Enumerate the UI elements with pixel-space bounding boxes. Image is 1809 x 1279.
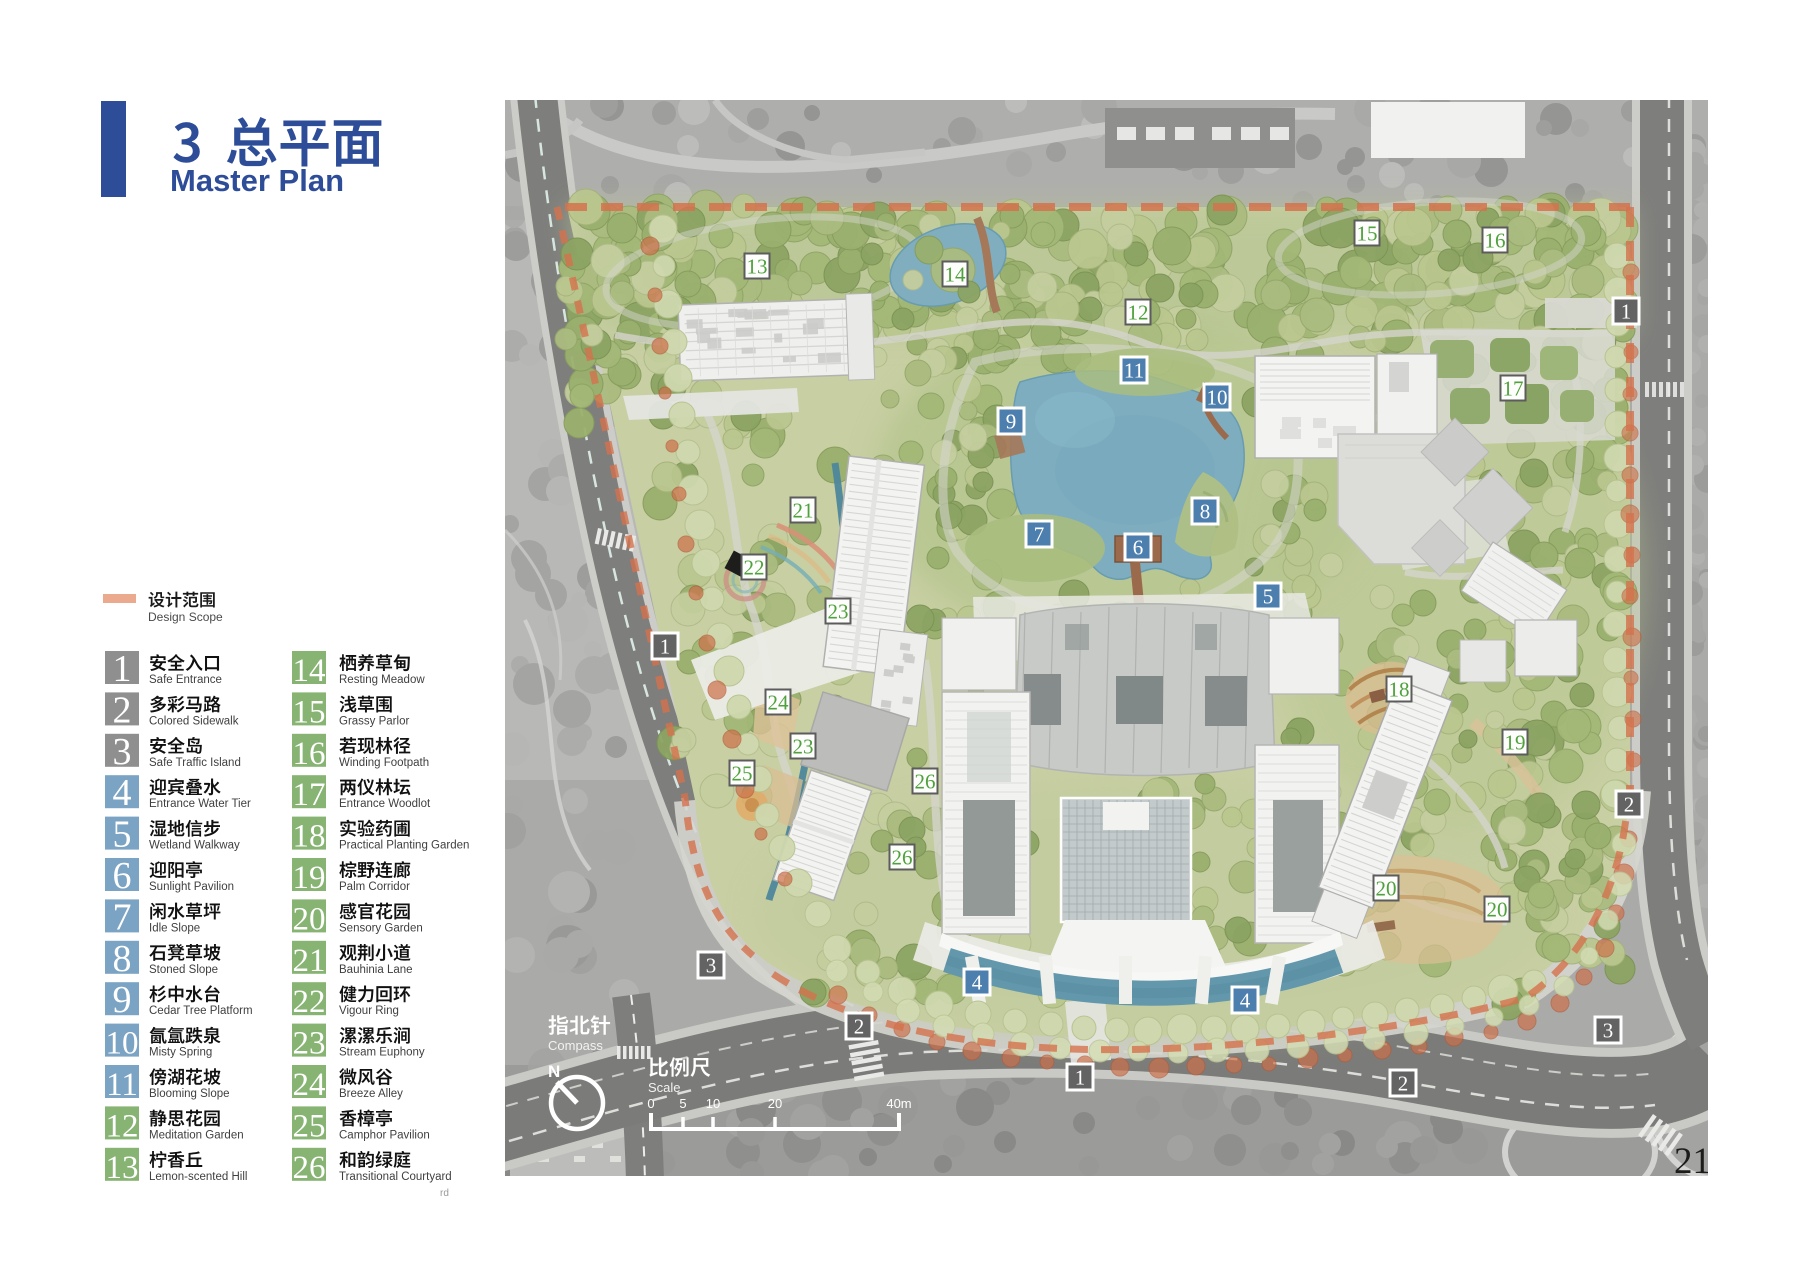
svg-text:Practical Planting Garden: Practical Planting Garden [339, 840, 469, 852]
svg-text:14: 14 [945, 263, 967, 287]
svg-text:Design Scope: Design Scope [148, 610, 223, 624]
svg-text:Stoned Slope: Stoned Slope [149, 964, 218, 976]
svg-text:10: 10 [1207, 386, 1228, 410]
svg-text:rd: rd [440, 1188, 449, 1199]
svg-text:1: 1 [1621, 300, 1632, 324]
svg-text:1: 1 [1075, 1066, 1086, 1090]
svg-text:7: 7 [113, 896, 132, 938]
svg-text:11: 11 [106, 1067, 138, 1103]
svg-text:24: 24 [293, 1067, 326, 1103]
svg-text:Master Plan: Master Plan [170, 163, 344, 198]
svg-text:Misty Spring: Misty Spring [149, 1047, 212, 1059]
svg-text:Vigour Ring: Vigour Ring [339, 1005, 399, 1017]
svg-text:Resting Meadow: Resting Meadow [339, 674, 425, 686]
svg-text:3: 3 [113, 731, 132, 773]
svg-text:26: 26 [892, 846, 913, 870]
svg-text:25: 25 [732, 762, 753, 786]
svg-text:23: 23 [793, 735, 814, 759]
svg-text:Camphor Pavilion: Camphor Pavilion [339, 1129, 430, 1141]
svg-text:5: 5 [113, 814, 132, 856]
svg-text:Sunlight Pavilion: Sunlight Pavilion [149, 881, 234, 893]
svg-text:3: 3 [1603, 1019, 1614, 1043]
svg-text:14: 14 [293, 653, 326, 689]
svg-text:10: 10 [106, 1026, 139, 1062]
svg-text:16: 16 [1485, 229, 1506, 253]
svg-text:Lemon-scented Hill: Lemon-scented Hill [149, 1171, 247, 1183]
svg-text:3: 3 [706, 954, 717, 978]
svg-text:Sensory Garden: Sensory Garden [339, 922, 423, 934]
svg-text:2: 2 [1398, 1072, 1409, 1096]
svg-text:15: 15 [293, 694, 326, 730]
svg-text:Scale: Scale [648, 1080, 681, 1095]
svg-text:18: 18 [293, 819, 326, 855]
svg-text:Transitional Courtyard: Transitional Courtyard [339, 1171, 452, 1183]
svg-text:12: 12 [106, 1108, 139, 1144]
svg-text:12: 12 [1128, 301, 1149, 325]
svg-text:Entrance Woodlot: Entrance Woodlot [339, 798, 431, 810]
svg-text:22: 22 [744, 556, 765, 580]
svg-text:21: 21 [793, 499, 814, 523]
svg-text:6: 6 [113, 855, 132, 897]
svg-text:Wetland Walkway: Wetland Walkway [149, 840, 240, 852]
svg-text:Meditation Garden: Meditation Garden [149, 1129, 244, 1141]
svg-text:1: 1 [113, 648, 132, 690]
svg-text:5: 5 [1263, 585, 1274, 609]
svg-text:16: 16 [293, 736, 326, 772]
svg-text:Safe Entrance: Safe Entrance [149, 674, 222, 686]
svg-text:2: 2 [1624, 793, 1635, 817]
svg-text:Colored Sidewalk: Colored Sidewalk [149, 715, 239, 727]
svg-text:N: N [548, 1062, 560, 1081]
svg-text:19: 19 [1505, 731, 1526, 755]
svg-text:22: 22 [293, 984, 326, 1020]
svg-text:11: 11 [1124, 359, 1144, 383]
svg-text:24: 24 [768, 691, 790, 715]
svg-text:21: 21 [1674, 1141, 1711, 1182]
svg-text:Entrance Water Tier: Entrance Water Tier [149, 798, 251, 810]
svg-text:13: 13 [747, 255, 768, 279]
svg-text:Breeze Alley: Breeze Alley [339, 1088, 403, 1100]
svg-text:Bauhinia Lane: Bauhinia Lane [339, 964, 413, 976]
svg-text:Stream Euphony: Stream Euphony [339, 1047, 425, 1059]
svg-text:1: 1 [660, 635, 671, 659]
svg-text:17: 17 [293, 777, 326, 813]
svg-text:21: 21 [293, 943, 326, 979]
svg-text:13: 13 [106, 1150, 139, 1186]
svg-text:18: 18 [1389, 678, 1410, 702]
svg-text:6: 6 [1133, 536, 1144, 560]
svg-text:9: 9 [1006, 410, 1017, 434]
svg-text:20: 20 [768, 1096, 782, 1111]
svg-text:20: 20 [293, 901, 326, 937]
svg-text:8: 8 [1200, 500, 1211, 524]
svg-text:15: 15 [1357, 222, 1378, 246]
svg-text:2: 2 [113, 689, 132, 731]
svg-text:0: 0 [647, 1096, 654, 1111]
svg-text:Compass: Compass [548, 1038, 603, 1053]
svg-text:5: 5 [679, 1096, 686, 1111]
svg-text:4: 4 [1240, 989, 1251, 1013]
svg-text:7: 7 [1034, 523, 1045, 547]
svg-text:20: 20 [1376, 877, 1397, 901]
svg-text:8: 8 [113, 938, 132, 980]
svg-text:Winding Footpath: Winding Footpath [339, 757, 429, 769]
svg-text:4: 4 [113, 772, 132, 814]
svg-text:9: 9 [113, 979, 132, 1021]
svg-text:25: 25 [293, 1108, 326, 1144]
svg-text:23: 23 [828, 600, 849, 624]
svg-text:19: 19 [293, 860, 326, 896]
svg-text:Safe Traffic Island: Safe Traffic Island [149, 757, 241, 769]
svg-text:Grassy Parlor: Grassy Parlor [339, 715, 409, 727]
svg-text:Idle Slope: Idle Slope [149, 922, 200, 934]
svg-text:20: 20 [1487, 898, 1508, 922]
svg-text:26: 26 [915, 770, 936, 794]
svg-text:26: 26 [293, 1150, 326, 1186]
svg-text:23: 23 [293, 1026, 326, 1062]
svg-text:Cedar Tree Platform: Cedar Tree Platform [149, 1005, 253, 1017]
svg-text:Palm Corridor: Palm Corridor [339, 881, 410, 893]
svg-text:Blooming Slope: Blooming Slope [149, 1088, 230, 1100]
svg-text:4: 4 [972, 971, 983, 995]
svg-text:2: 2 [854, 1015, 865, 1039]
svg-text:40m: 40m [886, 1096, 911, 1111]
svg-text:17: 17 [1503, 377, 1524, 401]
svg-text:10: 10 [706, 1096, 720, 1111]
